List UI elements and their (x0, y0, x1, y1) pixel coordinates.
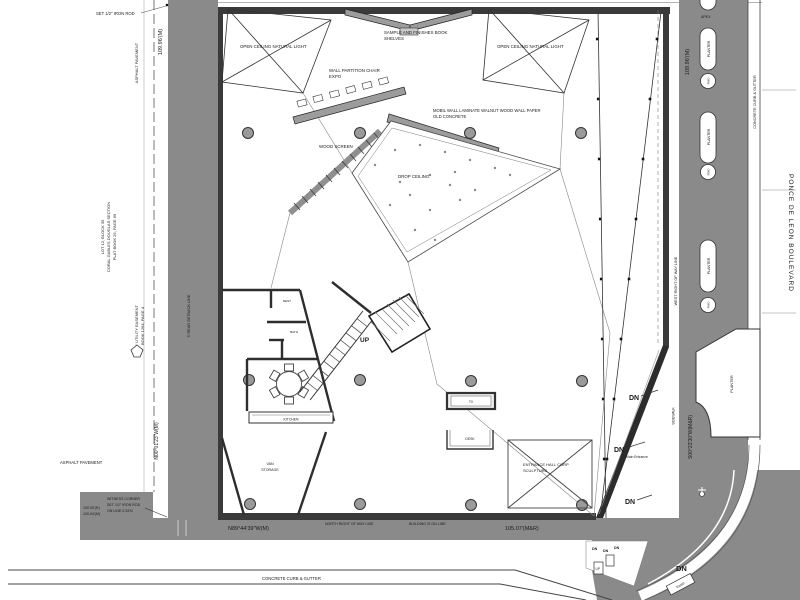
shelves-label-2: SHELVES (384, 36, 404, 41)
lot-note: LOT 12, BLOCK 35 CORAL GABLES DOUGLAS SE… (100, 202, 117, 272)
skylight-east (483, 9, 589, 93)
wedge-dn-3: DN (614, 546, 620, 550)
street-name-label: PONCE DE LEON BOULEVARD (787, 174, 794, 292)
east-wall (663, 7, 669, 347)
desk-label: DESK (465, 437, 475, 441)
west-alley-paving (168, 0, 218, 518)
skylight-east-label: OPEN CEILING NATURAL LIGHT (497, 44, 564, 49)
site-plan-canvas: CONCRETE CURB & GUTTER DN DN DN UP DN RA… (0, 0, 800, 600)
skylight-west (222, 9, 331, 93)
svg-text:ON LINE 0.33'N: ON LINE 0.33'N (107, 509, 133, 513)
monument-symbol (131, 345, 143, 357)
partition-label-1: WALL PARTITION CHAIR (329, 68, 380, 73)
north-wall (218, 7, 670, 14)
apex-label: APEX (701, 15, 711, 19)
van-label-2: STORAGE (261, 468, 279, 472)
svg-text:BOOK 1264, PAGE 4: BOOK 1264, PAGE 4 (140, 306, 145, 345)
asphalt-horizontal-label: ASPHALT PAVEMENT (60, 460, 103, 465)
west-dim: 109.96'(M) (158, 29, 164, 55)
wedge-dn-1: DN (592, 547, 598, 551)
tv-label: TV (469, 400, 474, 404)
interior-lines (271, 10, 661, 518)
skylight-west-label: OPEN CEILING NATURAL LIGHT (240, 44, 307, 49)
wood-screen-label: WOOD SCREEN (319, 144, 353, 149)
south-curb: CONCRETE CURB & GUTTER (8, 570, 612, 600)
svg-text:LOT 12, BLOCK 35: LOT 12, BLOCK 35 (100, 219, 105, 254)
svg-text:5' UTILITY EASEMENT: 5' UTILITY EASEMENT (134, 304, 139, 347)
entrance-dn-1: DN (629, 395, 639, 402)
planter-label-3: PLANTER (707, 257, 711, 274)
west-bearing: N00°01'23"W(M) (154, 422, 160, 460)
east-dim: 109.96'(M) (685, 49, 691, 75)
drop-ceiling-label: DROP CEILING (398, 174, 430, 179)
entrance-sculpture (508, 440, 592, 508)
room-a-label: REST (283, 299, 291, 303)
room-walls (222, 290, 334, 515)
corner-planter-label: PLANTER (730, 375, 734, 393)
round-table (269, 364, 308, 404)
row-line-label: NORTH RIGHT OF WAY LINE (325, 522, 374, 526)
rear-setback-label: 5' REAR SETBACK LINE (187, 294, 191, 337)
svg-text:PLAT BOOK 25, PAGE 69: PLAT BOOK 25, PAGE 69 (112, 213, 117, 260)
south-dim: 105.07'(M&R) (505, 526, 539, 532)
kitchen-counter: KITCHEN (249, 412, 333, 423)
south-curb-label: CONCRETE CURB & GUTTER (262, 576, 321, 581)
tree-label-2: PINO (707, 168, 711, 176)
building-on-line-label: BUILDING IS ON LINE (409, 522, 446, 526)
wedge-up-label: UP (596, 567, 600, 571)
east-curb-label: CONCRETE CURB & GUTTER (753, 75, 757, 129)
entrance-steps: DN DN DN Main Entrance (614, 390, 658, 506)
entrance-dn-2: DN (614, 447, 624, 454)
sculpture-label-1: ENTRANCE HALL CORP (523, 462, 569, 467)
stair-up-label: UP (360, 337, 370, 344)
tree-label-3: PINO (707, 301, 711, 309)
tv-console: TV (447, 393, 495, 409)
desk: DESK (447, 430, 493, 449)
asphalt-vertical-label: ASPHALT PAVEMENT (134, 42, 139, 83)
mobil-label-2: OLD CONCRETE (433, 114, 466, 119)
corner-dn-label: DN (676, 564, 687, 573)
planter-label-2: PLANTER (707, 128, 711, 145)
room-b-label: BATH (290, 330, 298, 334)
van-label-1: VAN (266, 462, 274, 466)
svg-text:CORAL GABLES DOUGLAS SECTION: CORAL GABLES DOUGLAS SECTION (106, 202, 111, 272)
entrance-dn-3: DN (625, 499, 635, 506)
main-entrance-label: Main Entrance (626, 455, 648, 459)
kitchen-label: KITCHEN (284, 418, 299, 422)
south-bearing: N89°44'39"W(M) (228, 526, 269, 532)
shelves-label-1: SAMPLE AND FINISHES BOOK (384, 30, 448, 35)
south-wall (218, 513, 596, 520)
wedge-dn-2: DN (603, 549, 609, 553)
easement-note: 5' UTILITY EASEMENT BOOK 1264, PAGE 4 (134, 304, 145, 347)
iron-rod-note: SET 1/2" IRON ROD (96, 11, 135, 16)
stair-landing (369, 294, 430, 352)
west-row-label: WEST RIGHT OF WAY LINE (674, 256, 678, 305)
svg-text:100.00'(R): 100.00'(R) (83, 506, 100, 510)
svg-text:SET 1/2" IRON ROD: SET 1/2" IRON ROD (107, 503, 141, 507)
svg-text:WITNESS CORNER: WITNESS CORNER (107, 497, 140, 501)
partition-label-2: EXPO (329, 74, 342, 79)
tree-label-1: PINO (707, 77, 711, 85)
svg-text:100.04'(M): 100.04'(M) (83, 512, 100, 516)
sculpture-label-2: SCULPTURE (523, 468, 548, 473)
sidewalk-label: SIDEWALK (672, 407, 676, 425)
drop-ceiling (352, 121, 560, 262)
east-bearing: S00°23'30"W(M&R) (688, 415, 694, 459)
planter-label-1: PLANTER (707, 40, 711, 57)
mobil-label-1: MOBIL WALL LAMINATE WALNUT WOOD WALL PAP… (433, 108, 541, 113)
